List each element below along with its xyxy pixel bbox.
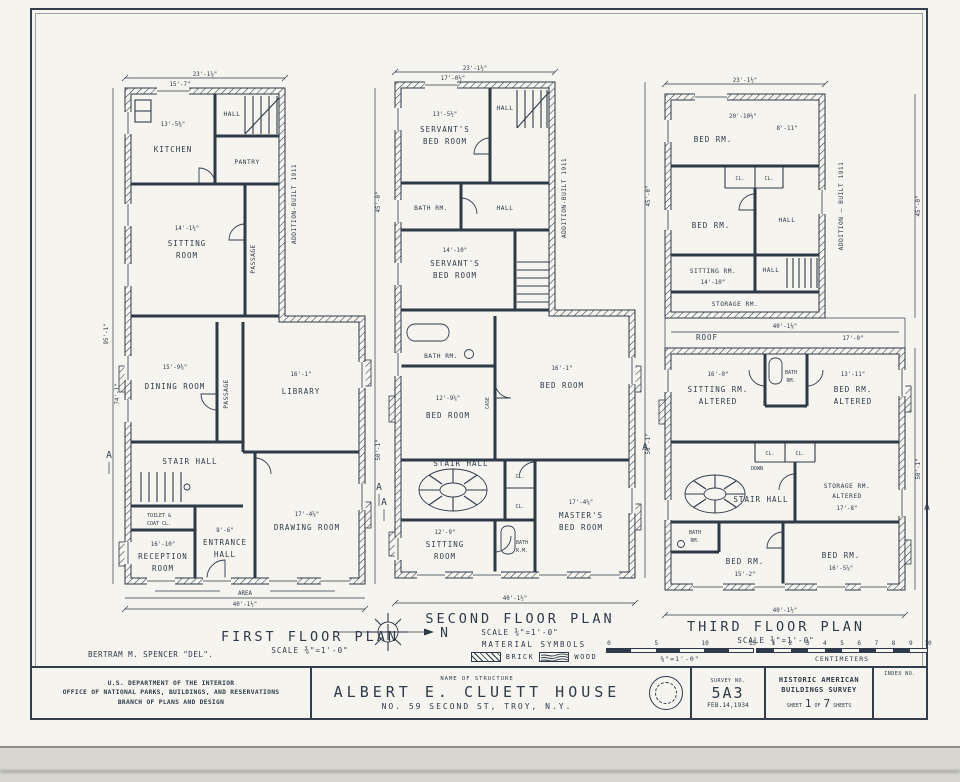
room-label-hall: HALL: [763, 267, 780, 274]
tick-label: 1: [771, 640, 775, 647]
brick-label: BRICK: [506, 653, 535, 661]
dim-label: 23'-1½": [463, 65, 487, 72]
wood-grain-swatch-icon: [539, 652, 569, 662]
scale-bar-segments: [756, 648, 928, 653]
dim-label: 17'-0": [843, 336, 864, 342]
room-label-hall: HALL: [497, 205, 514, 212]
room-label-pantry: PANTRY: [234, 159, 259, 166]
habs-title-line: HISTORIC AMERICAN: [779, 676, 859, 685]
dim-label: 23'-1⅞": [193, 71, 217, 78]
dim-label: 50'-1": [916, 459, 922, 480]
room-label-bedroom-altered: BED RM.: [834, 385, 873, 394]
addition-note: ADDITION-BUILT 1911: [291, 164, 298, 244]
scale-bar-cm-label: CENTIMETERS: [756, 655, 928, 663]
dim-label: 40'-1½": [773, 607, 797, 614]
room-label-bath: R.M.: [516, 548, 528, 554]
interior-walls: [131, 94, 359, 578]
room-label-bedroom: BED RM.: [692, 221, 731, 230]
interior-walls: [401, 88, 629, 572]
dim-label: 12'-9": [435, 530, 456, 536]
dim-label: 12'-9⅝": [436, 395, 460, 402]
down-label: DOWN: [751, 466, 763, 472]
room-label-entrance-hall: ENTRANCE: [203, 538, 247, 547]
room-label-bath: BATH RM.: [414, 205, 448, 212]
dim-label: 13'-5⅜": [161, 121, 185, 128]
addition-note: ADDITION-BUILT 1911: [561, 158, 568, 238]
room-label-stair-hall: STAIR HALL: [433, 459, 488, 468]
case-label: CASE: [485, 397, 491, 409]
doors: [199, 168, 271, 578]
index-number-cell: INDEX NO.: [872, 668, 926, 718]
stairs: [419, 90, 549, 511]
habs-cell: HISTORIC AMERICAN BUILDINGS SURVEY SHEET…: [764, 668, 872, 718]
room-label-bath: RM.: [786, 378, 795, 384]
room-label-servants-bedroom: BED ROOM: [423, 137, 467, 146]
legend-heading: MATERIAL SYMBOLS: [450, 640, 618, 649]
dim-label: 17'-0½": [441, 75, 465, 82]
sheet-number: 1: [805, 697, 812, 710]
room-label-passage: PASSAGE: [223, 379, 230, 409]
dim-label: 16'-10": [151, 542, 175, 548]
room-label-toilet: COAT CL.: [147, 521, 171, 527]
of-label: OF: [814, 703, 820, 709]
closet-label: CL.: [764, 176, 773, 182]
windows: [668, 97, 902, 587]
dim-label: 14'-10": [701, 280, 725, 286]
survey-number-cell: SURVEY NO. 5A3 FEB.14,1934: [690, 668, 764, 718]
room-label-bath: BATH: [516, 540, 528, 546]
tick-label: 7: [875, 640, 879, 647]
index-no-label: INDEX NO.: [884, 671, 916, 677]
room-label-sitting: SITTING: [168, 239, 207, 248]
tick-label: 4: [823, 640, 827, 647]
tick-label: 6: [857, 640, 861, 647]
section-marker-a: A: [642, 442, 648, 453]
closet-label: CL.: [515, 504, 524, 510]
room-label-masters-bedroom: BED ROOM: [559, 523, 603, 532]
north-label: N: [440, 626, 448, 641]
room-label-bath: BATH RM.: [424, 353, 458, 360]
closet-label: CL.: [735, 176, 744, 182]
third-floor-plan-drawing: 23'-1½" 20'-10½" 8'-11" BED RM. CL. CL. …: [635, 70, 935, 630]
dim-label: 16'-1": [291, 372, 312, 378]
dim-label: 15'-9⅜": [163, 364, 187, 371]
north-arrowhead-icon: [424, 629, 434, 636]
dimension-lines: [392, 69, 645, 606]
room-label-entrance-hall: HALL: [214, 550, 236, 559]
department-line: U.S. DEPARTMENT OF THE INTERIOR: [108, 679, 235, 688]
dim-label: 16'-1": [552, 366, 573, 372]
dim-label: 20'-10½": [729, 113, 757, 120]
dim-label: 8'-11": [777, 126, 798, 132]
north-arrow: N: [330, 606, 460, 658]
closet-label: CL.: [795, 451, 804, 457]
tick-label: 8: [892, 640, 896, 647]
room-label-passage: PASSAGE: [250, 244, 257, 274]
tick-label: 0: [607, 640, 611, 647]
room-label-servants-bedroom: SERVANT'S: [420, 125, 470, 134]
plan-title-text: THIRD FLOOR PLAN: [648, 619, 904, 635]
department-cell: U.S. DEPARTMENT OF THE INTERIOR OFFICE O…: [32, 668, 310, 718]
closet-label: CL.: [515, 474, 524, 480]
second-floor-plan-drawing: 23'-1½" 17'-0½" 13'-5½" SERVANT'S BED RO…: [365, 58, 665, 618]
department-line: OFFICE OF NATIONAL PARKS, BUILDINGS, AND…: [63, 688, 280, 697]
dim-label: 17'-4⅝": [295, 511, 319, 518]
dim-label: 15'-2": [735, 572, 756, 578]
exterior-walls: [659, 94, 911, 590]
room-label-bath: BATH: [785, 370, 797, 376]
room-label-sitting-altered: SITTING RM.: [688, 385, 749, 394]
habs-title-line: BUILDINGS SURVEY: [781, 686, 856, 695]
room-label-bedroom: BED RM.: [694, 135, 733, 144]
dim-label: 15'-7": [170, 82, 191, 88]
room-label-stair-hall: STAIR HALL: [733, 495, 788, 504]
room-label-kitchen: KITCHEN: [154, 145, 193, 154]
dim-label: 16'-5⅝": [829, 565, 853, 572]
tick-label: 5: [655, 640, 659, 647]
room-label-reception: ROOM: [152, 564, 174, 573]
sheets-total: 7: [824, 697, 831, 710]
structure-name: ALBERT E. CLUETT HOUSE: [334, 683, 621, 701]
dim-label: 45'-0": [916, 196, 922, 217]
sheets-label: SHEETS: [833, 703, 851, 709]
department-line: BRANCH OF PLANS AND DESIGN: [118, 698, 224, 707]
room-label-hall: HALL: [779, 217, 796, 224]
room-label-bedroom: BED ROOM: [540, 381, 584, 390]
dim-label: 16'-0": [708, 372, 729, 378]
section-marker-a: A: [924, 502, 930, 513]
section-marker-a: A: [376, 482, 382, 493]
dim-label: 74'-1": [115, 384, 121, 405]
room-label-library: LIBRARY: [282, 387, 321, 396]
dim-label: 13'-11": [841, 372, 865, 378]
dim-label: 23'-1½": [733, 77, 757, 84]
room-label-hall: HALL: [224, 111, 241, 118]
tick-label: 3: [806, 640, 810, 647]
scale-bar-cm-ticks: 1 2 3 4 5 6 7 8 9 10: [756, 640, 928, 648]
dim-label: 40'-1½": [503, 595, 527, 602]
structure-address: NO. 59 SECOND ST, TROY, N.Y.: [382, 702, 573, 711]
survey-no-value: 5A3: [711, 684, 744, 702]
room-label-bedroom: BED RM.: [822, 551, 861, 560]
structure-name-cell: NAME OF STRUCTURE ALBERT E. CLUETT HOUSE…: [310, 668, 642, 718]
room-label-bedroom: BED ROOM: [426, 411, 470, 420]
scale-bar-feet-label: ⅜"=1'-0": [606, 655, 754, 663]
survey-date: FEB.14,1934: [707, 702, 749, 709]
room-label-stair-hall: STAIR HALL: [162, 457, 217, 466]
room-label-storage: STORAGE RM.: [712, 301, 758, 308]
room-label-sitting-altered: ALTERED: [699, 397, 738, 406]
room-label-servants-bedroom: SERVANT'S: [430, 259, 480, 268]
room-label-hall: HALL: [497, 105, 514, 112]
room-label-sitting: SITTING RM.: [690, 268, 736, 275]
dim-label: 13'-5½": [433, 111, 457, 118]
scale-bar-cm: 1 2 3 4 5 6 7 8 9 10 CENTIMETERS: [756, 640, 928, 663]
room-label-toilet: TOILET &: [147, 513, 171, 519]
addition-note: ADDITION — BUILT 1911: [838, 162, 845, 251]
material-symbols-legend: MATERIAL SYMBOLS BRICK WOOD: [450, 640, 618, 662]
area-label: AREA: [238, 591, 252, 597]
dim-label: 17'-8": [837, 506, 858, 512]
room-label-bedroom: BED RM.: [726, 557, 765, 566]
dim-label: 95'-1": [104, 324, 110, 345]
room-label-dining: DINING ROOM: [145, 382, 206, 391]
scale-bar-feet: 0 5 10 15 ⅜"=1'-0": [606, 640, 754, 663]
seal-cell: [642, 668, 690, 718]
title-block: U.S. DEPARTMENT OF THE INTERIOR OFFICE O…: [30, 666, 928, 720]
dim-label: 40'-1½": [233, 601, 257, 608]
room-label-sitting: SITTING: [426, 540, 465, 549]
dim-label: 8'-6": [216, 528, 233, 534]
room-label-storage-altered: ALTERED: [832, 493, 862, 500]
tick-label: 10: [702, 640, 709, 647]
room-label-reception: RECEPTION: [138, 552, 188, 561]
dim-label: 14'-1½": [175, 225, 199, 232]
room-label-bedroom-altered: ALTERED: [834, 397, 873, 406]
dim-label: 17'-4⅝": [569, 499, 593, 506]
room-label-bath: BATH: [689, 530, 701, 536]
name-of-structure-label: NAME OF STRUCTURE: [440, 676, 513, 682]
room-label-sitting: ROOM: [176, 251, 198, 260]
first-floor-plan-drawing: 23'-1⅞" 15'-7" 13'-5⅜" KITCHEN HALL PANT…: [95, 64, 395, 624]
room-label-storage-altered: STORAGE RM.: [824, 483, 870, 490]
scan-artifact: [0, 770, 960, 773]
tick-label: 10: [924, 640, 931, 647]
scale-bar-segments: [606, 648, 754, 653]
sheet-count-row: SHEET 1 OF 7 SHEETS: [787, 697, 851, 710]
room-label-drawing-room: DRAWING ROOM: [274, 523, 340, 532]
delineator-credit: BERTRAM M. SPENCER "DEL".: [88, 650, 213, 659]
tick-label: 5: [840, 640, 844, 647]
nps-seal-icon: [649, 676, 683, 710]
dim-label: 40'-1⅛": [773, 323, 797, 330]
wood-label: WOOD: [574, 653, 597, 661]
sheet-label: SHEET: [787, 703, 802, 709]
scale-bar-feet-ticks: 0 5 10 15: [606, 640, 754, 648]
room-label-bath: RM.: [690, 538, 699, 544]
section-marker-a: A: [106, 450, 112, 461]
room-label-masters-bedroom: MASTER'S: [559, 511, 603, 520]
tick-label: 2: [789, 640, 793, 647]
tick-label: 9: [909, 640, 913, 647]
roof-label: ROOF: [696, 333, 718, 342]
room-label-servants-bedroom: BED ROOM: [433, 271, 477, 280]
room-label-sitting: ROOM: [434, 552, 456, 561]
brick-hatch-swatch-icon: [471, 652, 501, 662]
dim-label: 14'-10": [443, 248, 467, 254]
closet-label: CL.: [765, 451, 774, 457]
